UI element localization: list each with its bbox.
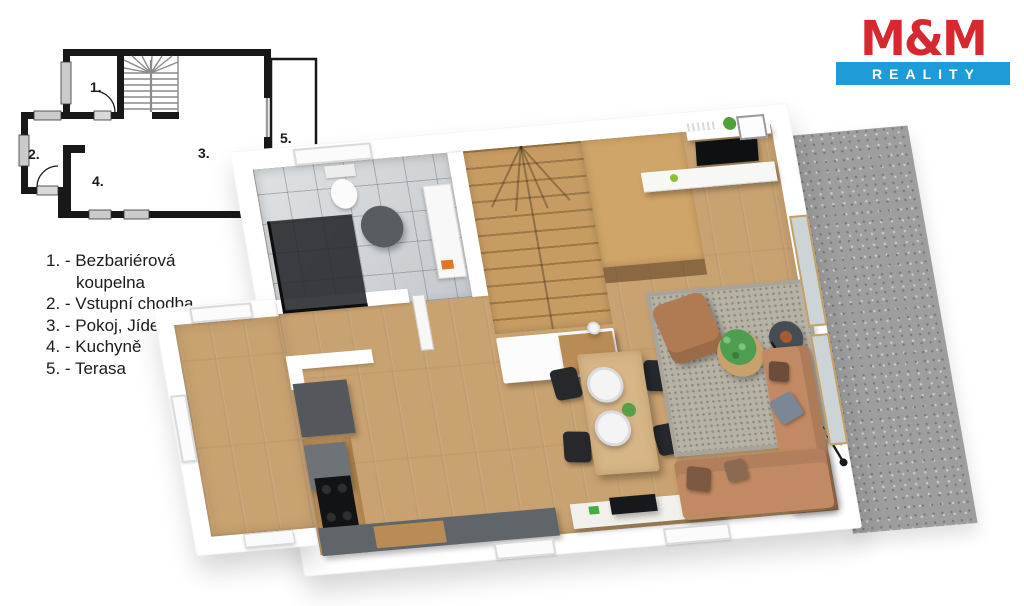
stair-landing bbox=[581, 132, 705, 267]
sofa-pillow-dark bbox=[769, 361, 789, 382]
desk-plant bbox=[588, 506, 599, 515]
vanity-accessory bbox=[441, 260, 455, 270]
shower-enclosure bbox=[267, 214, 368, 313]
stair-winder-line bbox=[520, 146, 549, 209]
room-number-1: 1. bbox=[90, 79, 102, 95]
room-number-4: 4. bbox=[92, 173, 104, 189]
room-number-2: 2. bbox=[28, 146, 40, 162]
toilet-bowl bbox=[328, 178, 359, 210]
sofa-pillow-brown bbox=[686, 466, 711, 493]
kitchen-tall-cabinet bbox=[293, 379, 356, 437]
floorplan-3d-render bbox=[124, 85, 1010, 605]
mm-reality-logo: M&M REALITY bbox=[836, 16, 1010, 85]
logo-subtitle: REALITY bbox=[865, 66, 981, 82]
toilet-tank bbox=[324, 164, 356, 178]
logo-title: M&M bbox=[836, 15, 1010, 61]
picture-frame bbox=[736, 114, 768, 140]
stairs-2d bbox=[124, 56, 178, 112]
stair-stringer bbox=[520, 146, 554, 329]
dining-chair bbox=[563, 431, 592, 462]
